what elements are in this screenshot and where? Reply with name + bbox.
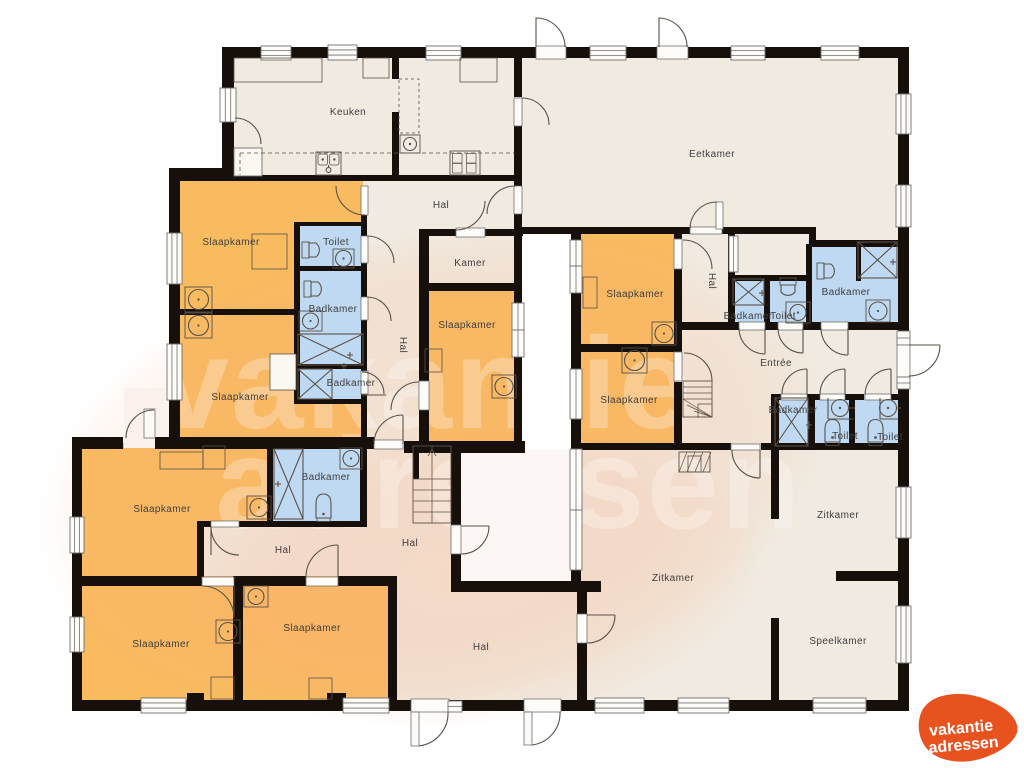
svg-text:Eetkamer: Eetkamer [689, 149, 735, 160]
svg-text:Slaapkamer: Slaapkamer [211, 392, 269, 403]
svg-text:Badkamer: Badkamer [822, 287, 871, 298]
svg-text:Toilet: Toilet [832, 431, 858, 442]
svg-text:Hal: Hal [397, 337, 408, 353]
svg-text:Toilet: Toilet [770, 311, 796, 322]
svg-text:Kamer: Kamer [454, 258, 486, 269]
svg-text:Badkamer: Badkamer [309, 304, 358, 315]
svg-text:Zitkamer: Zitkamer [817, 510, 859, 521]
svg-text:Hal: Hal [706, 273, 717, 289]
svg-text:Slaapkamer: Slaapkamer [438, 320, 496, 331]
svg-text:Slaapkamer: Slaapkamer [606, 289, 664, 300]
svg-text:Hal: Hal [473, 642, 489, 653]
svg-text:Slaapkamer: Slaapkamer [202, 237, 260, 248]
svg-text:Zitkamer: Zitkamer [652, 573, 694, 584]
svg-text:Speelkamer: Speelkamer [809, 636, 867, 647]
svg-text:Hal: Hal [402, 538, 418, 549]
svg-text:Badkamer: Badkamer [327, 378, 376, 389]
svg-text:Slaapkamer: Slaapkamer [600, 395, 658, 406]
svg-text:Slaapkamer: Slaapkamer [133, 504, 191, 515]
svg-text:Badkamer: Badkamer [769, 405, 818, 416]
svg-text:Badkamer: Badkamer [724, 311, 773, 322]
svg-text:Slaapkamer: Slaapkamer [132, 639, 190, 650]
svg-text:Hal: Hal [275, 545, 291, 556]
svg-text:Toilet: Toilet [323, 237, 349, 248]
svg-text:Slaapkamer: Slaapkamer [283, 623, 341, 634]
svg-text:Badkamer: Badkamer [302, 472, 351, 483]
svg-text:Hal: Hal [433, 200, 449, 211]
svg-text:Toilet: Toilet [877, 432, 903, 443]
svg-text:Entrée: Entrée [760, 358, 792, 369]
svg-text:Keuken: Keuken [330, 107, 366, 118]
